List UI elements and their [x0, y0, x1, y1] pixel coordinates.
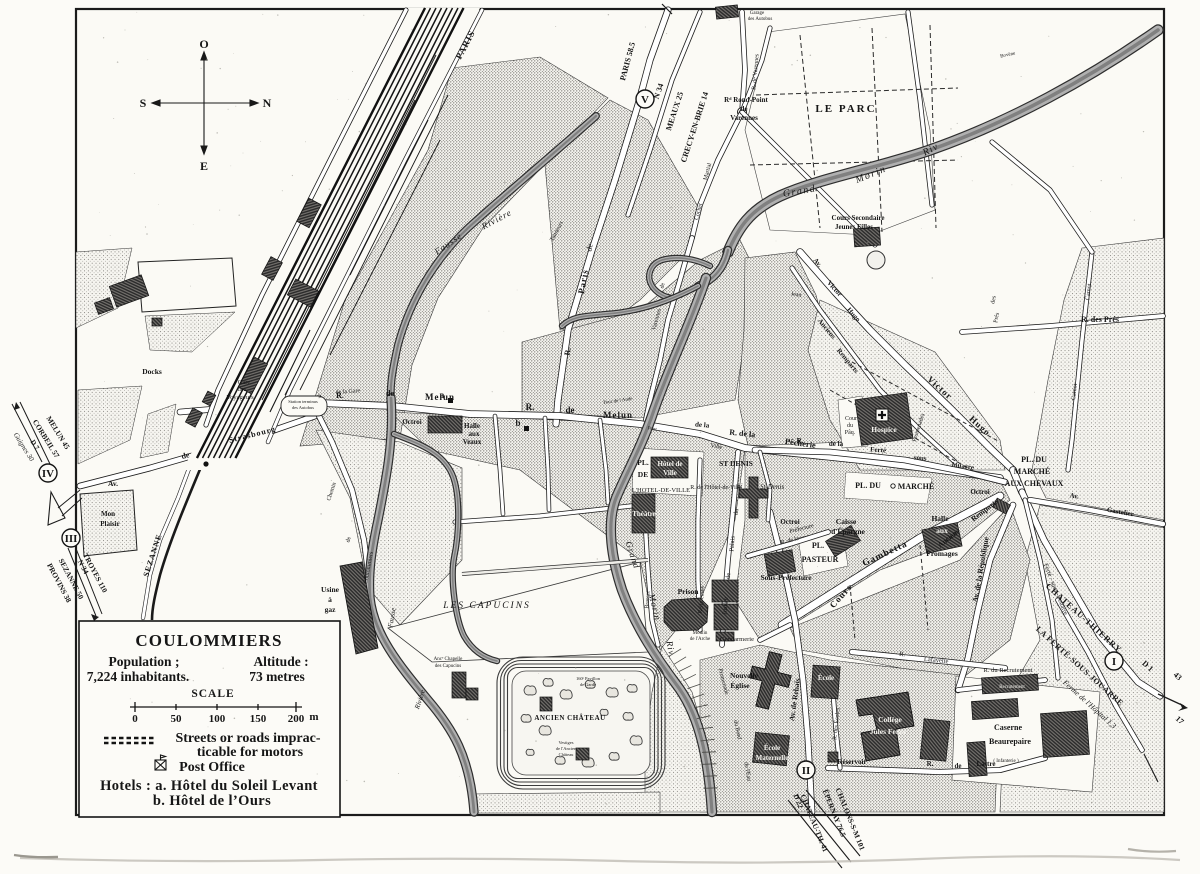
- svg-text:Palais: Palais: [728, 535, 736, 552]
- svg-text:de la: de la: [695, 420, 710, 429]
- svg-text:MARCHÉ: MARCHÉ: [898, 481, 934, 491]
- svg-text:Jeunes Filles: Jeunes Filles: [835, 223, 873, 231]
- svg-text:de: de: [741, 105, 748, 113]
- svg-text:Melun: Melun: [425, 392, 455, 402]
- svg-text:Château: Château: [559, 752, 574, 757]
- svg-text:R.: R.: [737, 482, 745, 489]
- svg-text:Av.: Av.: [108, 479, 118, 488]
- svg-text:Varennes: Varennes: [730, 114, 758, 122]
- svg-text:Ville: Ville: [663, 469, 677, 477]
- svg-text:R. de l'Hôtel-de-Ville: R. de l'Hôtel-de-Ville: [690, 485, 742, 491]
- svg-text:Moulin: Moulin: [693, 631, 708, 636]
- svg-text:de l'Ancien: de l'Ancien: [556, 746, 577, 751]
- svg-text:II: II: [802, 765, 811, 777]
- svg-text:Caisse: Caisse: [836, 517, 857, 526]
- svg-text:COULOMMIERS: COULOMMIERS: [135, 631, 282, 650]
- svg-text:Recrutement: Recrutement: [999, 685, 1025, 690]
- svg-text:École: École: [764, 744, 780, 752]
- svg-text:Rᵈ Rond-Point: Rᵈ Rond-Point: [724, 96, 768, 104]
- svg-text:gaz: gaz: [325, 605, 337, 614]
- svg-text:Gare: Gare: [238, 379, 251, 386]
- svg-text:7,224 inhabitants.: 7,224 inhabitants.: [87, 669, 189, 684]
- svg-text:LE PARC: LE PARC: [815, 103, 876, 115]
- svg-text:R. des Prés: R. des Prés: [1081, 315, 1119, 324]
- svg-text:Jules Ferry: Jules Ferry: [870, 727, 907, 736]
- svg-text:des: des: [238, 386, 247, 393]
- svg-text:MARCHÉ: MARCHÉ: [1014, 466, 1050, 476]
- svg-text:de: de: [386, 389, 394, 398]
- svg-text:aux: aux: [469, 430, 480, 438]
- svg-text:Fromages: Fromages: [926, 549, 958, 558]
- svg-text:b: b: [515, 418, 520, 428]
- svg-text:0: 0: [132, 713, 138, 725]
- svg-text:Mon: Mon: [101, 510, 115, 518]
- svg-text:d'Épargne: d'Épargne: [831, 526, 865, 536]
- svg-text:O: O: [199, 37, 208, 51]
- svg-text:Hôtel de: Hôtel de: [657, 460, 682, 468]
- svg-text:Hotels : a. Hôtel du Soleil Le: Hotels : a. Hôtel du Soleil Levant: [100, 778, 318, 794]
- svg-text:ANCIEN CHÂTEAU: ANCIEN CHÂTEAU: [534, 714, 605, 722]
- svg-text:E: E: [200, 159, 208, 173]
- svg-text:L'HOTEL-DE-VILLE: L'HOTEL-DE-VILLE: [632, 487, 690, 494]
- svg-text:Population ;: Population ;: [109, 654, 180, 669]
- svg-text:R.: R.: [562, 347, 572, 356]
- svg-text:PL.: PL.: [812, 541, 824, 550]
- svg-text:Plaisir: Plaisir: [100, 520, 119, 528]
- svg-text:École: École: [818, 674, 834, 682]
- svg-text:aux: aux: [936, 526, 948, 535]
- svg-text:Réservoir: Réservoir: [837, 758, 866, 766]
- svg-text:des Autobus: des Autobus: [292, 405, 314, 410]
- svg-text:AUX CHEVAUX: AUX CHEVAUX: [1005, 479, 1064, 488]
- svg-text:R.: R.: [927, 760, 934, 768]
- svg-text:200: 200: [288, 713, 305, 725]
- svg-text:Docks: Docks: [142, 367, 162, 376]
- svg-text:Halle: Halle: [464, 422, 480, 430]
- svg-text:Streets or roads imprac-: Streets or roads imprac-: [175, 731, 320, 746]
- svg-text:PL. DU: PL. DU: [1021, 455, 1047, 464]
- svg-text:ticable for motors: ticable for motors: [197, 745, 304, 760]
- svg-text:SCALE: SCALE: [191, 688, 234, 700]
- svg-text:de: de: [725, 572, 733, 579]
- svg-text:St-Denis: St-Denis: [760, 483, 784, 491]
- svg-text:de: de: [566, 405, 575, 415]
- svg-text:150: 150: [250, 713, 267, 725]
- svg-text:des Autobus: des Autobus: [748, 17, 773, 22]
- svg-text:100: 100: [209, 713, 226, 725]
- svg-text:Cours Secondaire: Cours Secondaire: [832, 214, 885, 222]
- svg-text:Maternelle: Maternelle: [756, 754, 789, 762]
- svg-text:Octroi: Octroi: [970, 488, 989, 496]
- svg-text:Halle: Halle: [931, 514, 949, 523]
- svg-text:( Infanterie ): ( Infanterie ): [993, 759, 1019, 764]
- svg-text:Gendarmerie: Gendarmerie: [720, 636, 754, 643]
- svg-text:Ancᵉ Chapelle: Ancᵉ Chapelle: [434, 657, 463, 662]
- svg-text:50: 50: [171, 713, 183, 725]
- svg-text:Beaurepaire: Beaurepaire: [989, 737, 1031, 746]
- svg-text:Pâq.: Pâq.: [845, 430, 856, 436]
- svg-text:Église: Église: [730, 680, 750, 690]
- svg-text:Nouvelle: Nouvelle: [730, 671, 759, 680]
- svg-text:73 metres: 73 metres: [249, 669, 305, 684]
- svg-text:N: N: [263, 96, 272, 110]
- svg-text:ST DENIS: ST DENIS: [719, 459, 753, 468]
- svg-text:Théâtre: Théâtre: [632, 510, 656, 518]
- svg-text:Garage: Garage: [750, 11, 765, 16]
- svg-text:IV: IV: [42, 468, 54, 480]
- svg-text:b. Hôtel de l’Ours: b. Hôtel de l’Ours: [153, 793, 271, 809]
- svg-text:de Garde: de Garde: [580, 682, 596, 687]
- svg-text:Altitude :: Altitude :: [253, 654, 308, 669]
- svg-text:LES CAPUCINS: LES CAPUCINS: [442, 601, 531, 611]
- svg-text:PL. DU: PL. DU: [855, 481, 881, 490]
- svg-text:de l'Arche: de l'Arche: [690, 637, 711, 642]
- svg-text:Sous-Préfecture: Sous-Préfecture: [760, 573, 812, 582]
- svg-text:Ferté: Ferté: [870, 445, 886, 454]
- svg-text:Caserne: Caserne: [994, 723, 1022, 732]
- svg-text:sous: sous: [913, 453, 927, 462]
- svg-text:V: V: [641, 94, 649, 106]
- svg-text:III: III: [65, 533, 78, 545]
- svg-text:Veaux: Veaux: [463, 438, 482, 446]
- svg-text:I: I: [1112, 656, 1116, 668]
- svg-text:R.: R.: [526, 402, 535, 412]
- svg-text:S: S: [140, 96, 147, 110]
- svg-text:Cour: Cour: [845, 416, 857, 422]
- svg-text:m: m: [309, 711, 318, 723]
- svg-text:Station terminus: Station terminus: [288, 399, 318, 404]
- svg-text:Usine: Usine: [321, 585, 340, 594]
- svg-text:R. du Recrutement: R. du Recrutement: [984, 667, 1033, 674]
- svg-text:Vestiges: Vestiges: [559, 740, 574, 745]
- svg-text:de: de: [955, 762, 962, 770]
- svg-text:PASTEUR: PASTEUR: [802, 555, 839, 564]
- svg-text:Post Office: Post Office: [179, 760, 245, 775]
- svg-text:Octroi: Octroi: [402, 418, 421, 426]
- svg-text:Collège: Collège: [878, 715, 902, 724]
- svg-text:du: du: [847, 423, 853, 429]
- svg-text:de la: de la: [829, 440, 844, 448]
- svg-text:à: à: [328, 595, 332, 604]
- svg-text:Lattre: Lattre: [977, 760, 996, 768]
- svg-text:PL.: PL.: [637, 458, 649, 467]
- svg-text:Hospice: Hospice: [871, 425, 897, 434]
- svg-text:Voyageurs: Voyageurs: [226, 394, 254, 401]
- svg-text:R.: R.: [899, 651, 906, 659]
- svg-text:Av.: Av.: [1069, 491, 1080, 500]
- svg-text:DE: DE: [638, 470, 648, 479]
- svg-text:160ᵉ Pavillon: 160ᵉ Pavillon: [576, 676, 601, 681]
- svg-text:Prison: Prison: [678, 587, 700, 596]
- svg-text:des Capucins: des Capucins: [435, 664, 462, 669]
- svg-text:Octroi: Octroi: [780, 518, 799, 526]
- svg-text:Melun: Melun: [603, 410, 633, 420]
